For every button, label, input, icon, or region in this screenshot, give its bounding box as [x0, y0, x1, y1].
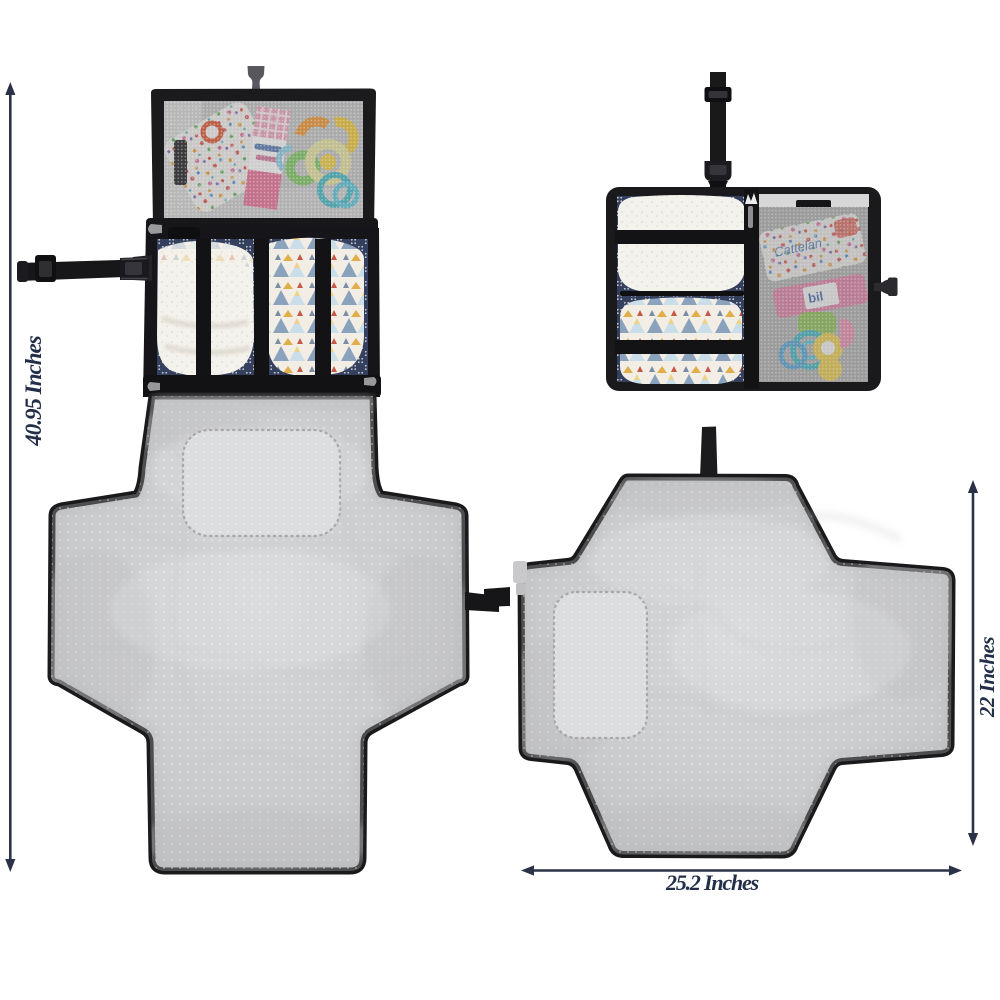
- svg-text:25.2 Inches: 25.2 Inches: [665, 870, 759, 895]
- svg-text:40.95 Inches: 40.95 Inches: [21, 335, 46, 446]
- svg-text:22 Inches: 22 Inches: [975, 637, 999, 718]
